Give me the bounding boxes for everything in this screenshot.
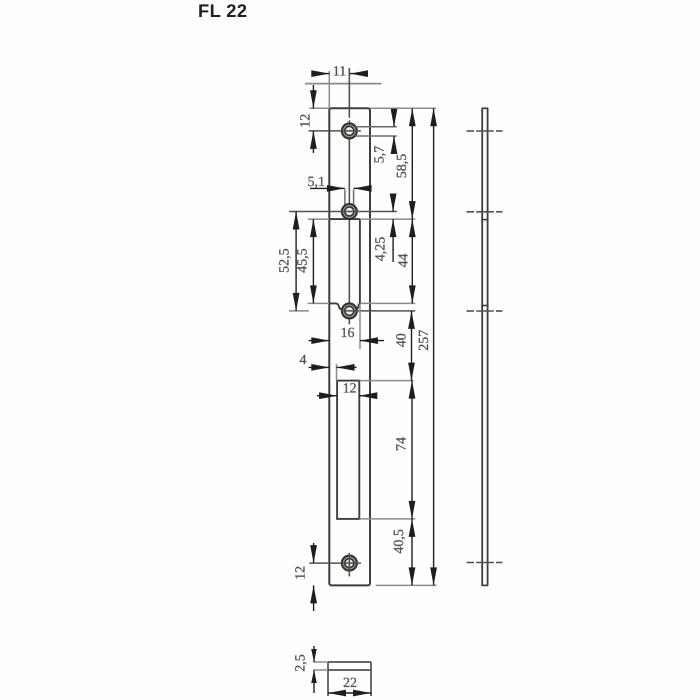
svg-text:22: 22	[343, 676, 357, 691]
svg-text:40: 40	[395, 333, 410, 347]
svg-text:257: 257	[417, 330, 432, 351]
svg-text:4: 4	[300, 353, 307, 368]
svg-text:12: 12	[298, 114, 313, 128]
svg-text:52,5: 52,5	[278, 248, 293, 273]
svg-text:12: 12	[294, 566, 309, 580]
svg-text:74: 74	[395, 437, 410, 451]
svg-text:40,5: 40,5	[392, 529, 407, 554]
svg-text:12: 12	[343, 382, 357, 397]
svg-text:58,5: 58,5	[395, 154, 410, 179]
svg-text:4,25: 4,25	[374, 237, 389, 262]
svg-text:2,5: 2,5	[294, 654, 309, 672]
svg-text:5,7: 5,7	[373, 146, 388, 164]
svg-text:FL 22: FL 22	[198, 0, 247, 21]
svg-text:5,1: 5,1	[307, 175, 325, 190]
svg-text:45,5: 45,5	[296, 248, 311, 273]
svg-text:11: 11	[333, 65, 346, 80]
svg-text:44: 44	[396, 254, 411, 268]
svg-text:16: 16	[341, 326, 355, 341]
